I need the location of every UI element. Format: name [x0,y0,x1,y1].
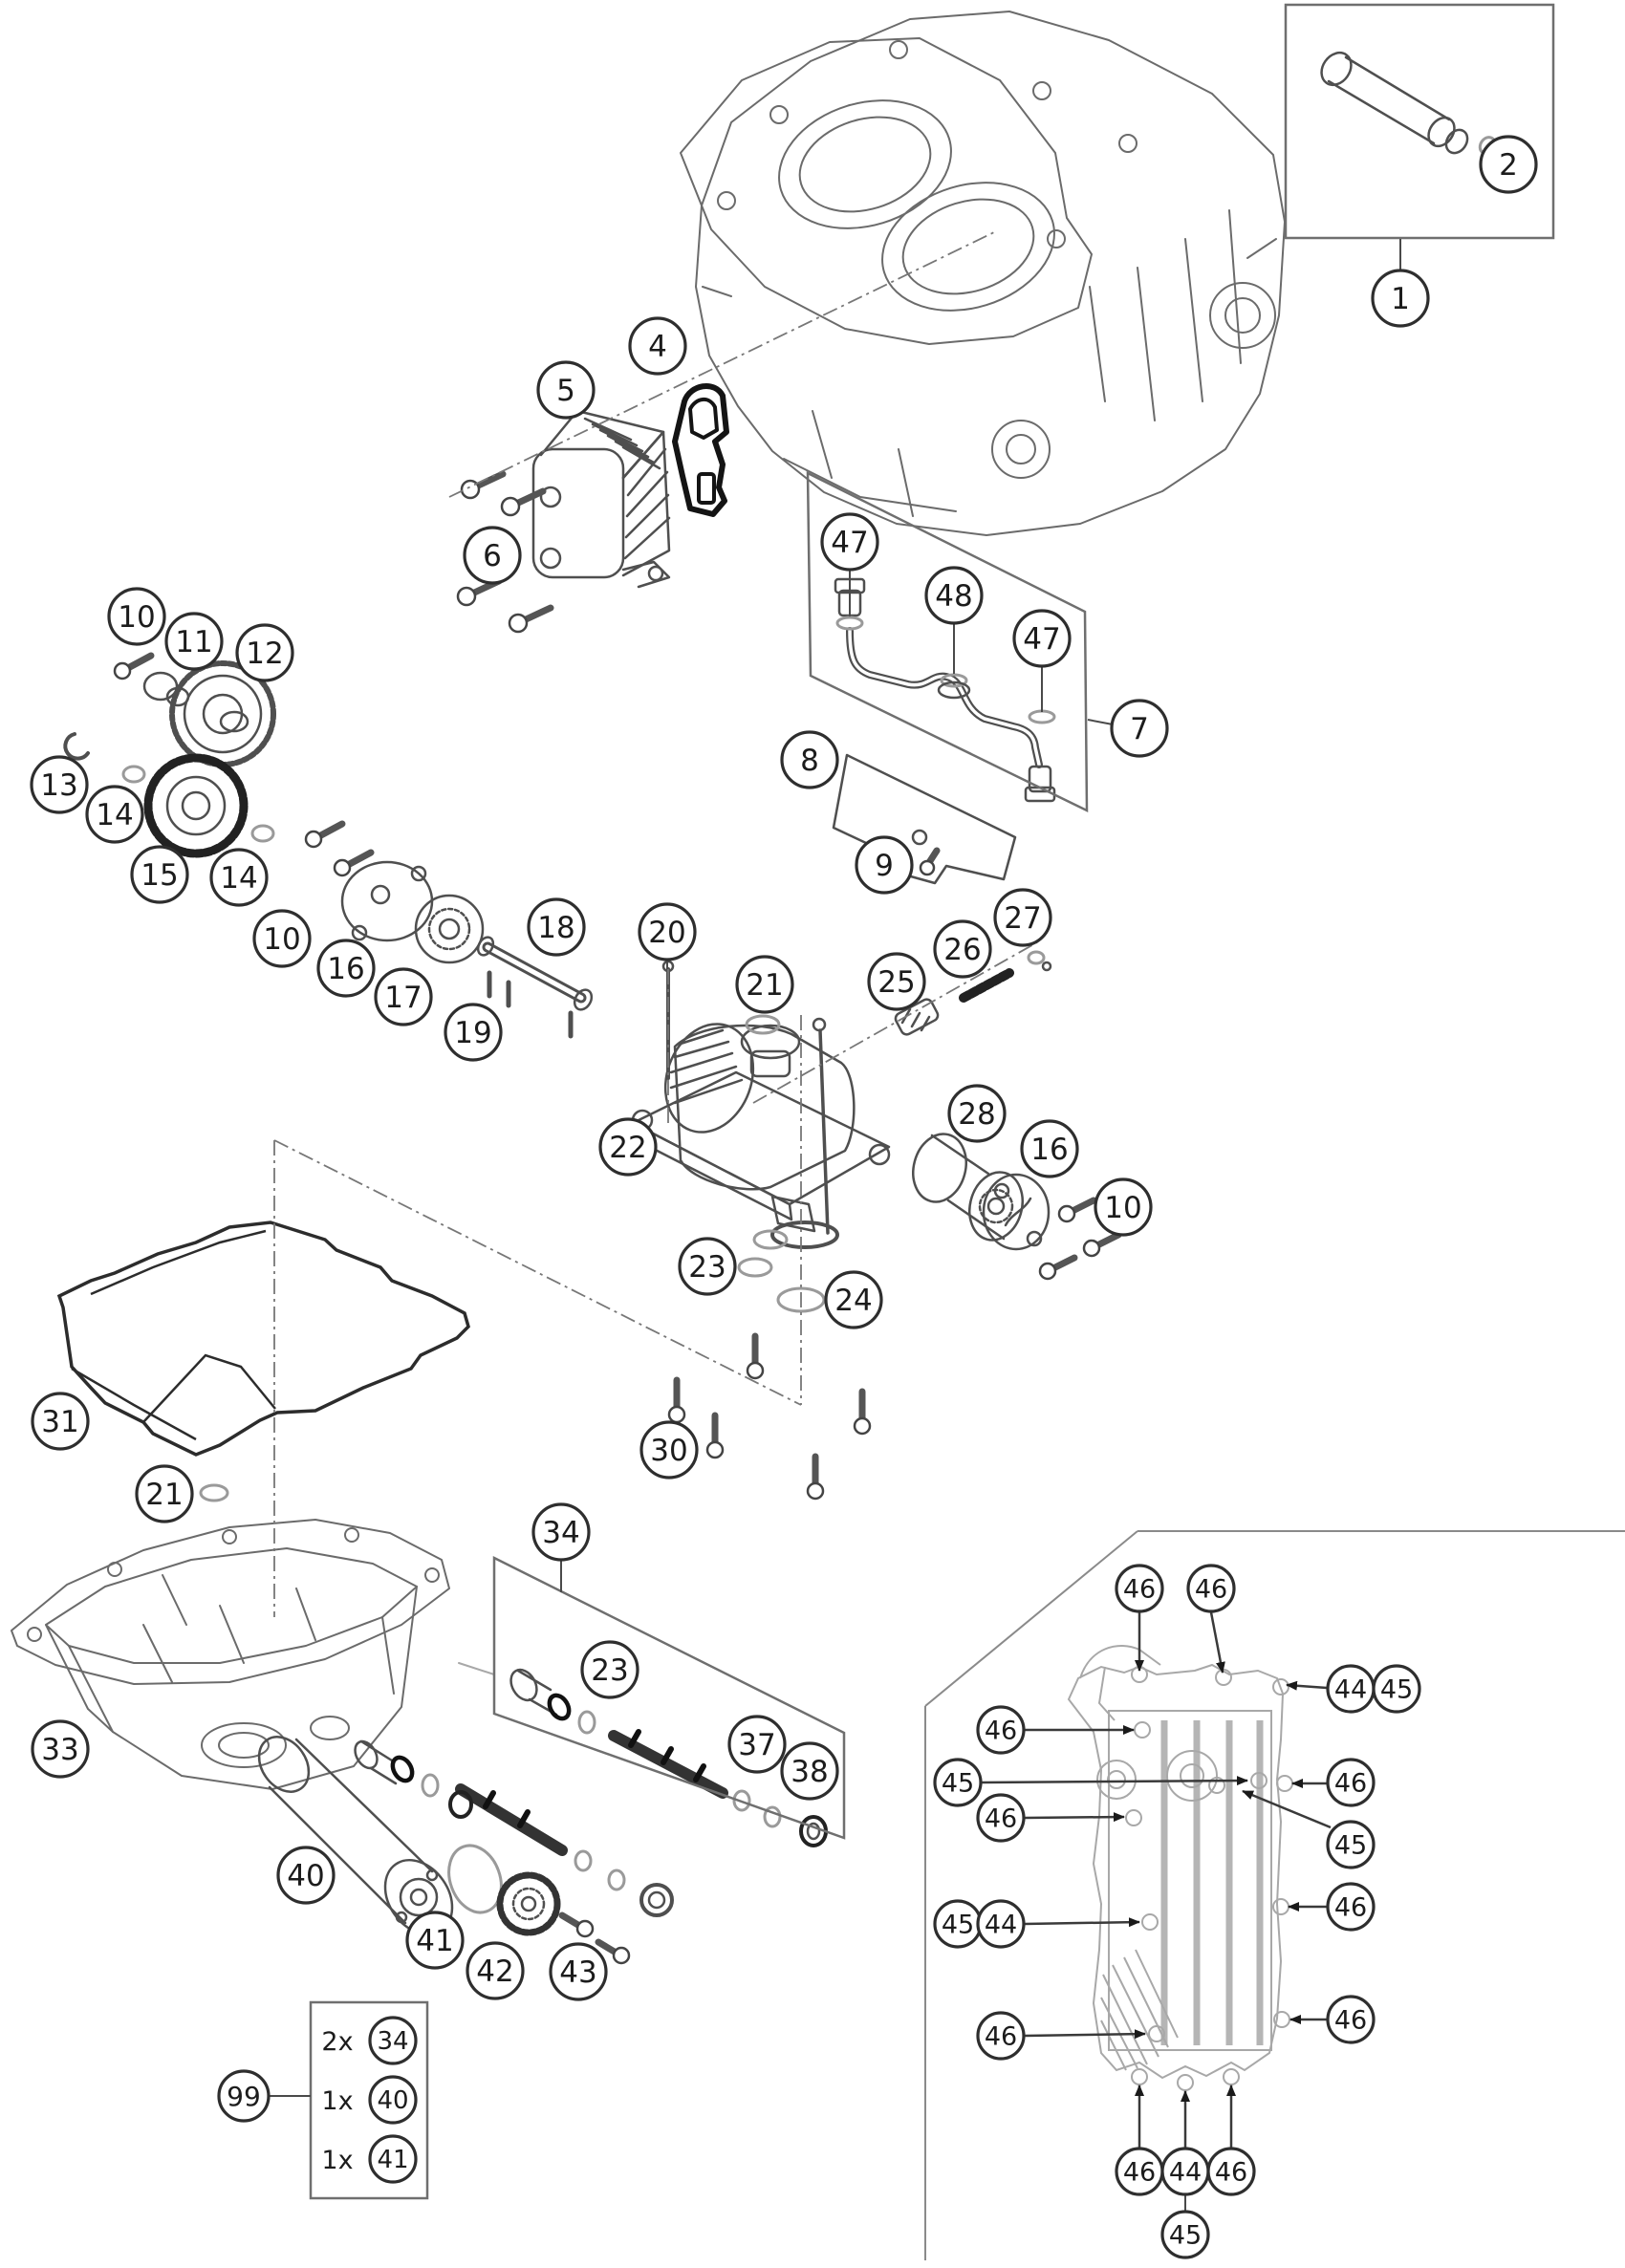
callout-46[interactable]: 46 [1188,1566,1234,1611]
pump-cover-16-sketch [984,1175,1118,1279]
callout-6[interactable]: 6 [465,528,520,583]
callout-2[interactable]: 2 [1481,137,1536,192]
pan-gasket-sketch [59,1222,468,1455]
callout-number: 20 [648,916,685,950]
parts-diagram-page: 2x341x401x41 124564748477891011121314151… [0,0,1625,2268]
callout-number: 45 [1334,1831,1367,1861]
callout-number: 44 [985,1911,1017,1940]
callout-number: 46 [985,1804,1017,1834]
callout-43[interactable]: 43 [551,1944,606,1999]
callout-21[interactable]: 21 [137,1466,192,1522]
callout-15[interactable]: 15 [132,847,187,902]
callout-number: 10 [118,600,155,635]
callout-48[interactable]: 48 [926,568,982,623]
callout-23[interactable]: 23 [582,1642,638,1697]
callout-11[interactable]: 11 [166,614,222,669]
callout-45[interactable]: 45 [1374,1666,1419,1712]
callout-number: 46 [985,1717,1017,1746]
callout-number: 48 [935,579,972,614]
callout-number: 25 [877,965,915,1000]
callout-27[interactable]: 27 [995,890,1051,945]
callout-number: 38 [791,1755,828,1789]
callout-20[interactable]: 20 [639,904,695,960]
callout-number: 21 [746,968,783,1003]
callout-number: 45 [942,1911,974,1940]
callout-46[interactable]: 46 [978,1707,1024,1753]
callout-44[interactable]: 44 [1328,1666,1374,1712]
legend-qty: 2x [321,2027,353,2057]
callout-number: 13 [40,768,77,803]
small-bolt-9-sketch [921,851,937,875]
callout-number: 34 [542,1516,579,1550]
callout-46[interactable]: 46 [978,1795,1024,1841]
callout-number: 47 [1023,622,1060,657]
leader-arrow [982,1781,1247,1782]
legend-callout-number: 41 [377,2146,408,2174]
callout-number: 12 [246,637,283,671]
callout-12[interactable]: 12 [237,625,292,680]
callout-18[interactable]: 18 [529,899,584,955]
callout-31[interactable]: 31 [32,1393,88,1449]
callout-37[interactable]: 37 [729,1717,785,1772]
callout-number: 23 [591,1653,628,1688]
callout-47[interactable]: 47 [822,514,877,570]
callout-number: 8 [800,744,819,778]
callout-8[interactable]: 8 [782,732,837,788]
callout-14[interactable]: 14 [211,850,267,905]
callout-30[interactable]: 30 [641,1422,697,1478]
callout-number: 44 [1334,1675,1367,1705]
leader-arrow [1025,2034,1145,2036]
callout-number: 16 [327,952,364,986]
callout-number: 42 [476,1955,513,1989]
callout-number: 99 [227,2081,261,2112]
leader-arrow [1287,1685,1327,1688]
pump-bolts-30-sketch [669,1336,870,1499]
callout-number: 1 [1391,282,1410,316]
callout-number: 47 [831,526,868,560]
callout-40[interactable]: 40 [278,1847,334,1903]
callout-10[interactable]: 10 [254,911,310,966]
callout-number: 9 [875,849,894,883]
callout-number: 22 [609,1131,646,1165]
callout-number: 18 [537,911,574,945]
callout-10[interactable]: 10 [109,589,164,644]
callout-number: 14 [220,861,257,896]
callout-22[interactable]: 22 [600,1119,656,1175]
callout-46[interactable]: 46 [978,2013,1024,2059]
kit-box [494,1558,844,1838]
callout-1[interactable]: 1 [1373,270,1428,326]
callout-number: 2 [1499,148,1518,183]
callout-24[interactable]: 24 [826,1272,881,1328]
callout-45[interactable]: 45 [935,1760,981,1805]
callout-21[interactable]: 21 [737,957,792,1012]
legend-callout-41[interactable]: 41 [370,2136,416,2182]
callout-number: 10 [263,922,300,957]
callout-47[interactable]: 47 [1014,611,1070,666]
callout-number: 46 [1334,1893,1367,1923]
callout-number: 46 [985,2022,1017,2052]
callout-46[interactable]: 46 [1328,1760,1374,1805]
oring-21-sketch [201,1485,227,1501]
legend-callout-34[interactable]: 34 [370,2018,416,2063]
callout-46[interactable]: 46 [1208,2149,1254,2194]
callout-number: 37 [738,1728,775,1762]
callout-23[interactable]: 23 [680,1239,735,1294]
callout-number: 6 [483,539,502,573]
callout-number: 17 [384,981,422,1015]
callout-number: 11 [175,625,212,659]
leader-arrow [1025,1922,1139,1924]
legend-qty: 1x [321,2086,353,2116]
callout-number: 28 [958,1097,995,1132]
callout-number: 30 [650,1434,687,1468]
legend-callout-number: 34 [377,2027,408,2056]
leader-line [925,1531,1137,1706]
callout-number: 45 [1380,1675,1413,1705]
callout-16[interactable]: 16 [318,940,374,996]
callout-number: 41 [416,1924,453,1958]
callout-number: 44 [1169,2158,1202,2188]
callout-45[interactable]: 45 [1328,1822,1374,1868]
callout-14[interactable]: 14 [87,787,142,842]
callout-4[interactable]: 4 [630,318,685,374]
callout-number: 16 [1030,1133,1068,1167]
callout-number: 40 [287,1859,324,1893]
callout-number: 31 [41,1405,78,1439]
callout-number: 7 [1130,712,1149,746]
oil-pan-bolt-view-sketch [1069,1646,1292,2090]
callout-number: 5 [556,374,575,408]
callout-17[interactable]: 17 [376,969,431,1025]
leader-arrow [1025,1817,1124,1818]
callout-number: 46 [1123,2158,1156,2188]
callout-44[interactable]: 44 [1162,2149,1208,2194]
callout-number: 23 [688,1250,726,1285]
callouts-layer: 1245647484778910111213141514101617181920… [32,137,1536,2257]
callout-28[interactable]: 28 [949,1086,1005,1141]
legend-layer: 2x341x401x41 [321,2018,416,2182]
callout-number: 4 [648,330,667,364]
callout-number: 45 [1169,2221,1202,2251]
callout-45[interactable]: 45 [1162,2212,1208,2257]
callout-number: 24 [834,1284,872,1318]
callout-number: 19 [454,1016,491,1050]
legend-callout-40[interactable]: 40 [370,2077,416,2123]
pin-box [1286,5,1553,238]
callout-number: 21 [145,1478,183,1512]
callout-number: 10 [1104,1191,1141,1225]
leader-arrow [1243,1791,1331,1827]
callout-number: 46 [1334,1769,1367,1799]
callout-41[interactable]: 41 [407,1912,463,1968]
engine-block-sketch [681,11,1285,535]
callout-number: 26 [943,933,981,967]
callout-26[interactable]: 26 [935,921,990,977]
callout-46[interactable]: 46 [1116,2149,1162,2194]
callout-45[interactable]: 45 [935,1901,981,1947]
callout-number: 46 [1195,1575,1227,1605]
callout-46[interactable]: 46 [1328,1997,1374,2042]
leader-line [1088,720,1113,724]
callout-42[interactable]: 42 [467,1943,523,1998]
callout-7[interactable]: 7 [1112,701,1167,756]
callout-19[interactable]: 19 [445,1004,501,1060]
callout-5[interactable]: 5 [538,362,594,418]
callout-46[interactable]: 46 [1116,1566,1162,1611]
callout-number: 45 [942,1769,974,1799]
exploded-diagram-canvas: 2x341x401x41 124564748477891011121314151… [0,0,1625,2268]
dowel-pin-sketch [1315,47,1498,157]
callout-number: 46 [1215,2158,1247,2188]
callout-33[interactable]: 33 [32,1721,88,1777]
callout-34[interactable]: 34 [533,1504,589,1560]
callout-13[interactable]: 13 [32,757,87,812]
callout-number: 46 [1123,1575,1156,1605]
callout-38[interactable]: 38 [782,1743,837,1799]
callout-99[interactable]: 99 [219,2071,269,2121]
cooler-gasket-sketch [675,386,726,514]
callout-46[interactable]: 46 [1328,1884,1374,1930]
callout-number: 14 [96,798,133,832]
callout-number: 27 [1004,901,1041,936]
callout-16[interactable]: 16 [1022,1121,1077,1177]
callout-10[interactable]: 10 [1095,1179,1151,1235]
legend-callout-number: 40 [377,2086,408,2115]
leader-arrow [1211,1612,1223,1673]
callout-number: 43 [559,1955,596,1990]
callout-number: 15 [141,858,178,893]
callout-44[interactable]: 44 [978,1901,1024,1947]
oil-filter-sketch [906,1128,1030,1246]
callout-25[interactable]: 25 [869,954,924,1009]
legend-qty: 1x [321,2146,353,2175]
callout-number: 46 [1334,2006,1367,2036]
callout-number: 33 [41,1733,78,1767]
callout-9[interactable]: 9 [856,837,912,893]
